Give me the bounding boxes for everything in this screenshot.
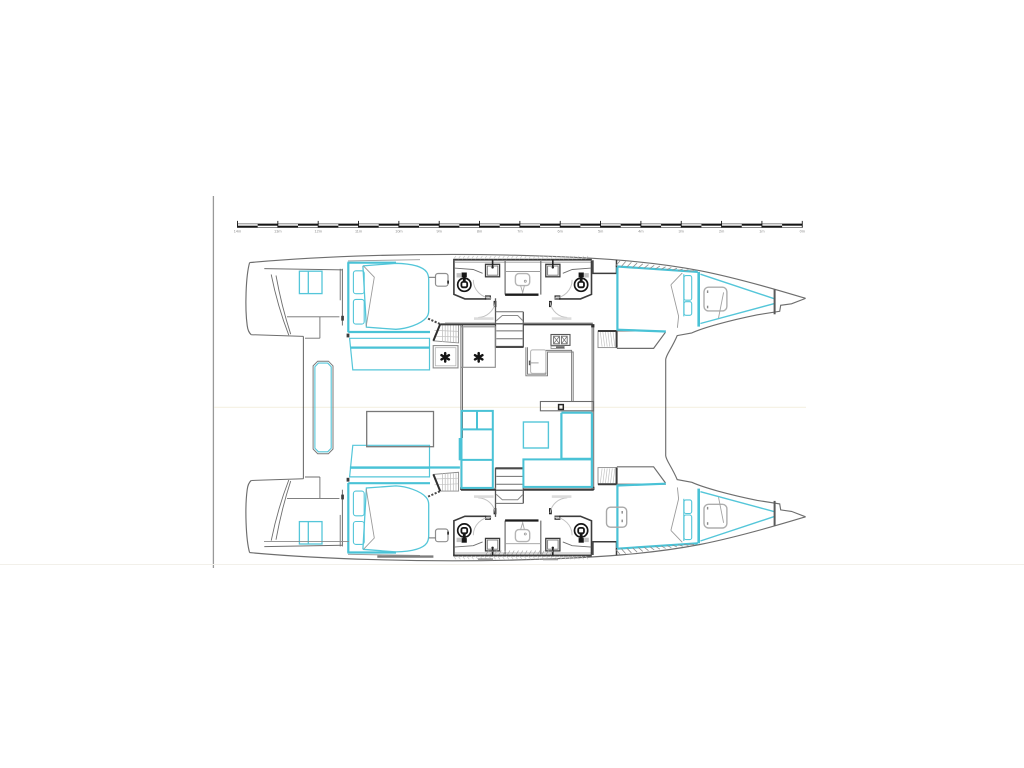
svg-text:1m: 1m — [759, 229, 764, 233]
svg-text:2m: 2m — [719, 229, 724, 233]
svg-text:14m: 14m — [234, 229, 241, 233]
svg-text:5m: 5m — [598, 229, 603, 233]
svg-text:12m: 12m — [315, 229, 322, 233]
svg-text:9m: 9m — [437, 229, 442, 233]
svg-text:13m: 13m — [274, 229, 281, 233]
svg-text:6m: 6m — [558, 229, 563, 233]
svg-text:7m: 7m — [517, 229, 522, 233]
svg-text:8m: 8m — [477, 229, 482, 233]
svg-text:3m: 3m — [679, 229, 684, 233]
svg-text:11m: 11m — [355, 229, 362, 233]
svg-text:10m: 10m — [395, 229, 402, 233]
svg-text:4m: 4m — [638, 229, 643, 233]
svg-text:0m: 0m — [800, 229, 805, 233]
